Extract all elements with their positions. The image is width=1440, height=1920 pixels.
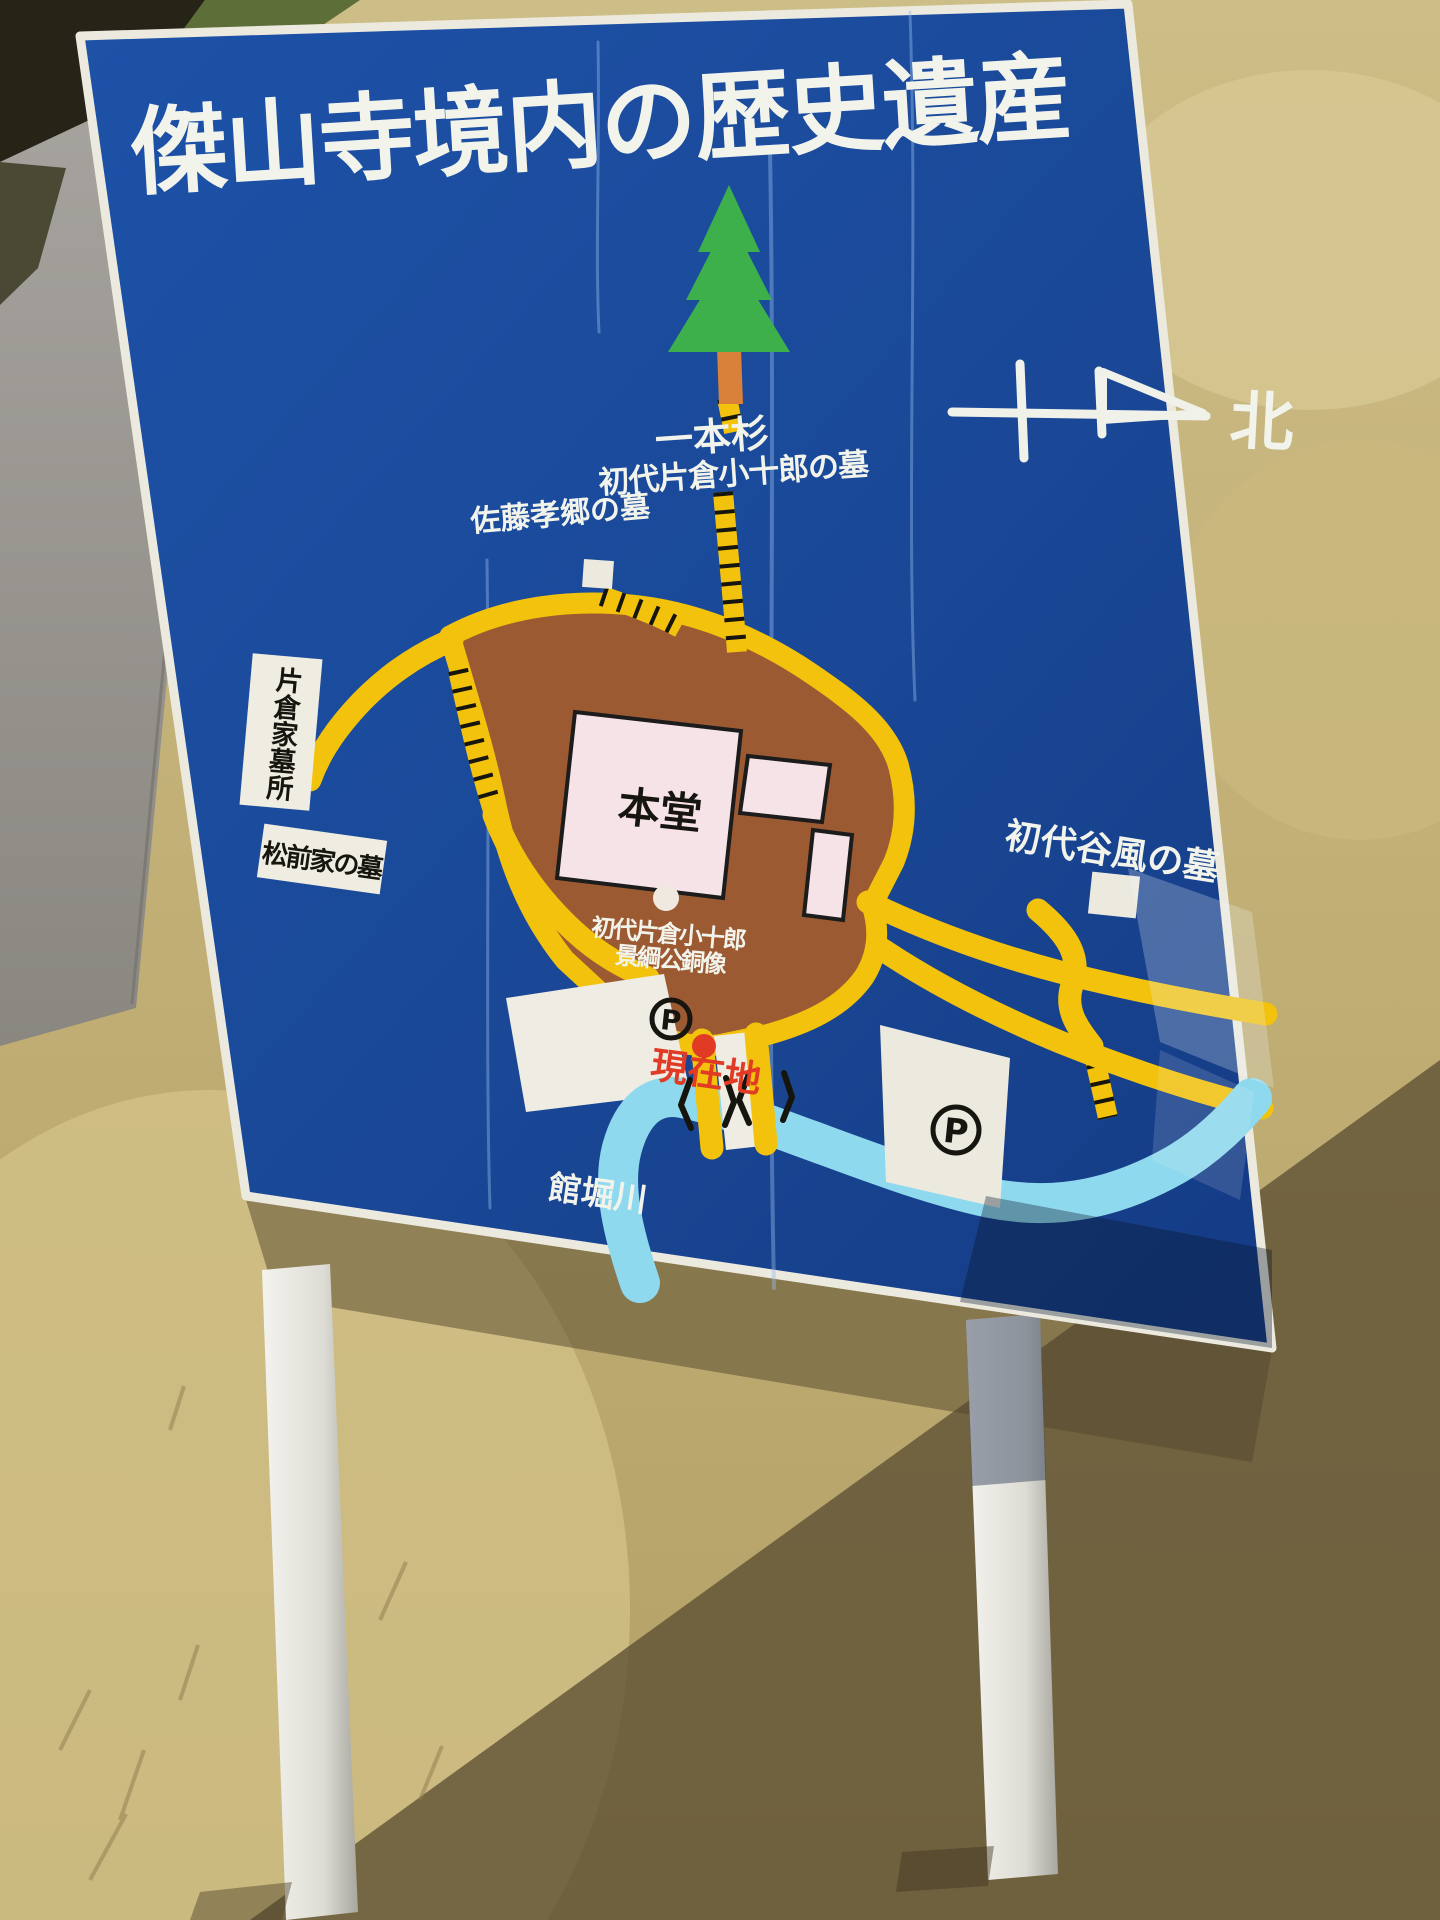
katakura-cemetery-label-box: 片倉家墓所 <box>240 653 323 811</box>
statue-marker <box>653 885 679 911</box>
right-post-shadowed-top <box>966 1314 1046 1486</box>
building <box>804 830 852 920</box>
sato-grave-marker <box>582 559 614 589</box>
tree-trunk <box>717 348 743 404</box>
north-arrow-crossbar <box>1020 364 1024 458</box>
signboard: 傑山寺境内の歴史遺産 <box>80 4 1296 1348</box>
building <box>740 756 830 822</box>
main-hall-label: 本堂 <box>616 782 705 840</box>
photo-of-temple-map-signboard: 傑山寺境内の歴史遺産 <box>0 0 1440 1920</box>
north-label: 北 <box>1228 384 1296 461</box>
parking-icon-letter: P <box>941 1111 970 1153</box>
parking-icon-letter: P <box>659 1003 683 1038</box>
right-post-base-shadow <box>896 1846 994 1892</box>
